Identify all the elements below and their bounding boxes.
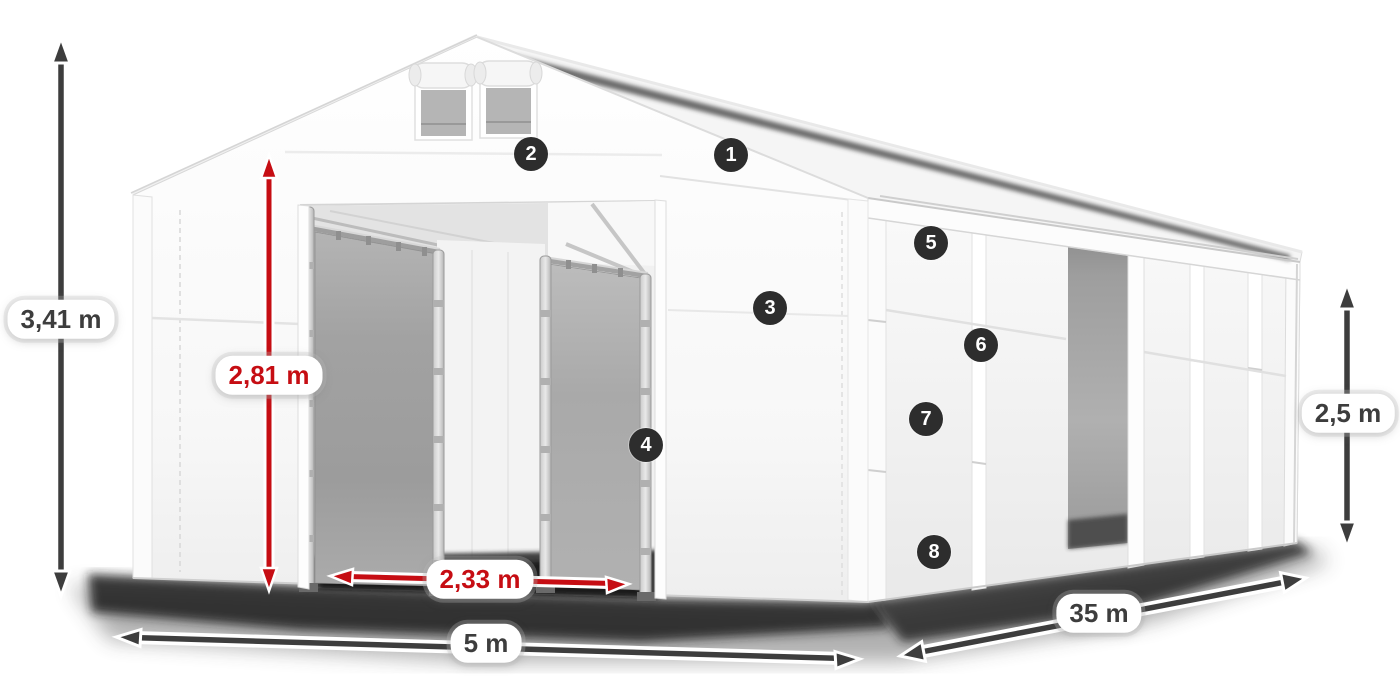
part-marker-4: 4: [629, 428, 663, 462]
front-entrance: [298, 200, 666, 601]
part-marker-3: 3: [753, 291, 787, 325]
part-marker-5: 5: [914, 226, 948, 260]
tent-illustration: [0, 0, 1400, 700]
entrance-door-1: [299, 207, 448, 596]
dimension-label-entrance-width: 2,33 m: [427, 560, 534, 599]
gable-window-right: [474, 61, 542, 138]
dimension-label-tent-width: 5 m: [451, 624, 522, 663]
part-marker-6: 6: [964, 328, 998, 362]
part-marker-8: 8: [917, 535, 951, 569]
part-marker-2: 2: [514, 137, 548, 171]
part-marker-7: 7: [909, 402, 943, 436]
dimension-label-side-height: 2,5 m: [1302, 394, 1395, 433]
side-door-opening: [1068, 228, 1128, 549]
dimension-label-total-height: 3,41 m: [8, 300, 115, 339]
gable-window-left: [409, 63, 477, 140]
part-marker-1: 1: [714, 138, 748, 172]
dimension-label-entrance-height: 2,81 m: [216, 356, 323, 395]
tent-dimension-diagram: 3,41 m2,81 m2,33 m5 m35 m2,5 m 12345678: [0, 0, 1400, 700]
dimension-label-tent-length: 35 m: [1056, 594, 1141, 633]
